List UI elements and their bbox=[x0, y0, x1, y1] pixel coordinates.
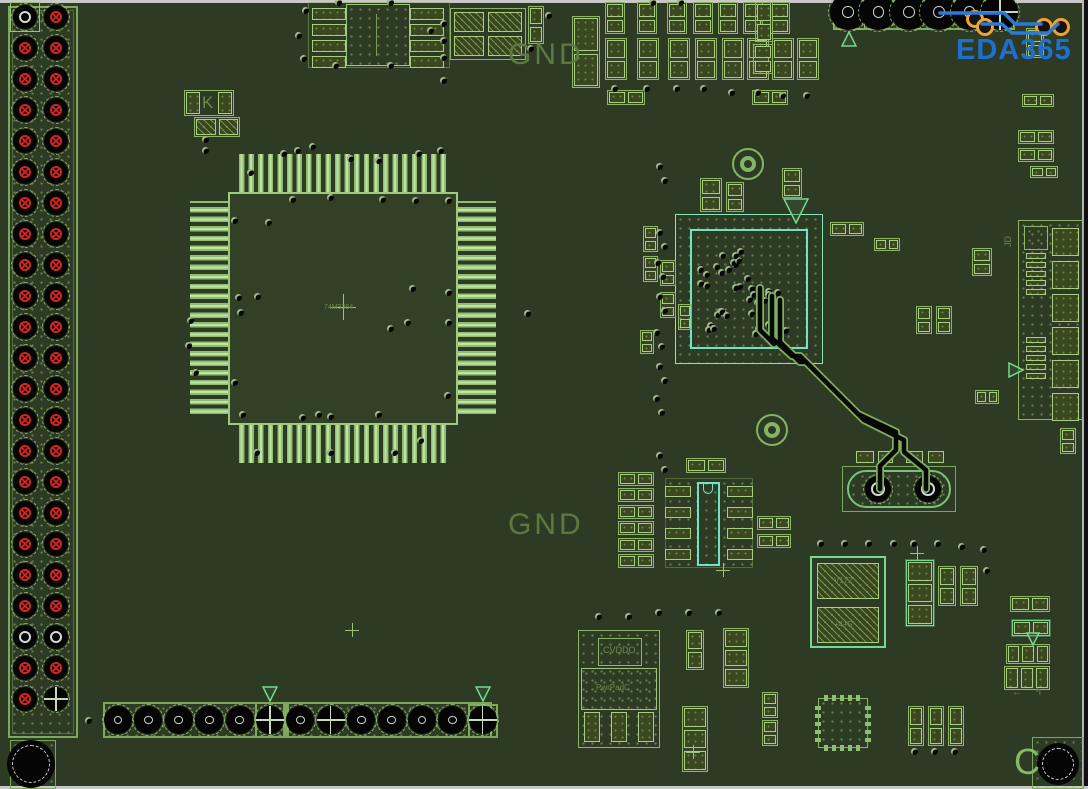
silkscreen-micro-text: ↰ bbox=[1034, 688, 1042, 698]
silkscreen-micro-text: 74M9364 bbox=[324, 304, 353, 311]
copper-traces bbox=[0, 0, 1088, 789]
silkscreen-micro-text: C bbox=[1014, 744, 1040, 780]
silkscreen-micro-text: JD bbox=[1004, 236, 1013, 247]
silkscreen-gnd-top: GND bbox=[508, 40, 584, 70]
silkscreen-micro-text: K bbox=[202, 94, 213, 111]
silkscreen-gnd-bottom: GND bbox=[508, 510, 584, 540]
silkscreen-micro-text: ← bbox=[1012, 688, 1022, 698]
silkscreen-micro-text: +4+5 bbox=[834, 621, 852, 629]
eda365-logo: EDA365 bbox=[956, 36, 1072, 65]
silkscreen-micro-text: V172 bbox=[834, 577, 853, 585]
pcb-layout-canvas: GND GND EDA365 CVDDOPwrPadCV172+4+574M93… bbox=[0, 0, 1088, 789]
silkscreen-micro-text: CVDDO bbox=[603, 646, 636, 655]
silkscreen-micro-text: PwrPadC bbox=[596, 684, 630, 692]
